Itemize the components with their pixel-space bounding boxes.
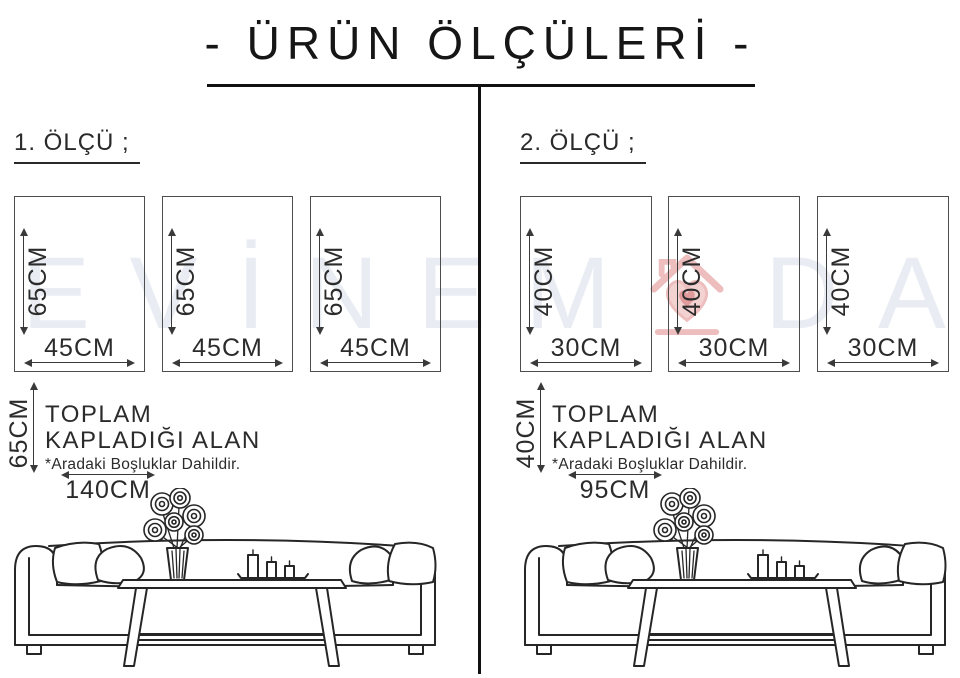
total-width-arrow-icon [570, 474, 660, 475]
total-height-label: 40CM [513, 393, 539, 473]
size-1-heading: 1. ÖLÇÜ ; [14, 129, 140, 164]
total-caption-line1: TOPLAM [552, 402, 768, 428]
total-caption-line2: KAPLADIĞI ALAN [552, 428, 768, 454]
total-height-label: 65CM [6, 393, 32, 473]
panel-width-label: 30CM [521, 334, 651, 363]
panel-width-label: 45CM [15, 334, 144, 363]
panel-height-label: 40CM [531, 241, 557, 321]
panel-width-label: 45CM [311, 334, 440, 363]
section-divider-line [478, 85, 481, 674]
size2-panel-2: 40CM 30CM [668, 196, 800, 372]
size1-panel-2: 65CM 45CM [162, 196, 293, 372]
panel-width-label: 30CM [669, 334, 799, 363]
sofa-scene-illustration [5, 488, 450, 674]
sofa-scene-illustration [515, 488, 960, 674]
title-underline-rule [207, 84, 755, 87]
page-title: - ÜRÜN ÖLÇÜLERİ - [0, 16, 960, 70]
panel-height-label: 65CM [25, 241, 51, 321]
panel-width-label: 30CM [818, 334, 948, 363]
panel-height-label: 40CM [679, 241, 705, 321]
total-width-arrow-icon [63, 474, 153, 475]
size1-panel-3: 65CM 45CM [310, 196, 441, 372]
size1-panel-1: 65CM 45CM [14, 196, 145, 372]
total-caption-line2: KAPLADIĞI ALAN [45, 428, 261, 454]
total-caption-line1: TOPLAM [45, 402, 261, 428]
panel-height-label: 65CM [173, 241, 199, 321]
panel-width-label: 45CM [163, 334, 292, 363]
panel-height-label: 65CM [321, 241, 347, 321]
total-height-arrow-icon [540, 384, 541, 471]
product-dimensions-infographic: E V İ N E M D A - ÜRÜN ÖLÇÜLERİ - 1. ÖLÇ… [0, 0, 960, 678]
size2-panel-3: 40CM 30CM [817, 196, 949, 372]
total-area-caption: TOPLAM KAPLADIĞI ALAN *Aradaki Boşluklar… [552, 402, 768, 473]
total-height-arrow-icon [33, 384, 34, 471]
brand-watermark: E V İ N E M D A [22, 246, 946, 346]
panel-height-label: 40CM [828, 241, 854, 321]
total-area-caption: TOPLAM KAPLADIĞI ALAN *Aradaki Boşluklar… [45, 402, 261, 473]
size-2-heading: 2. ÖLÇÜ ; [520, 129, 646, 164]
size2-panel-1: 40CM 30CM [520, 196, 652, 372]
